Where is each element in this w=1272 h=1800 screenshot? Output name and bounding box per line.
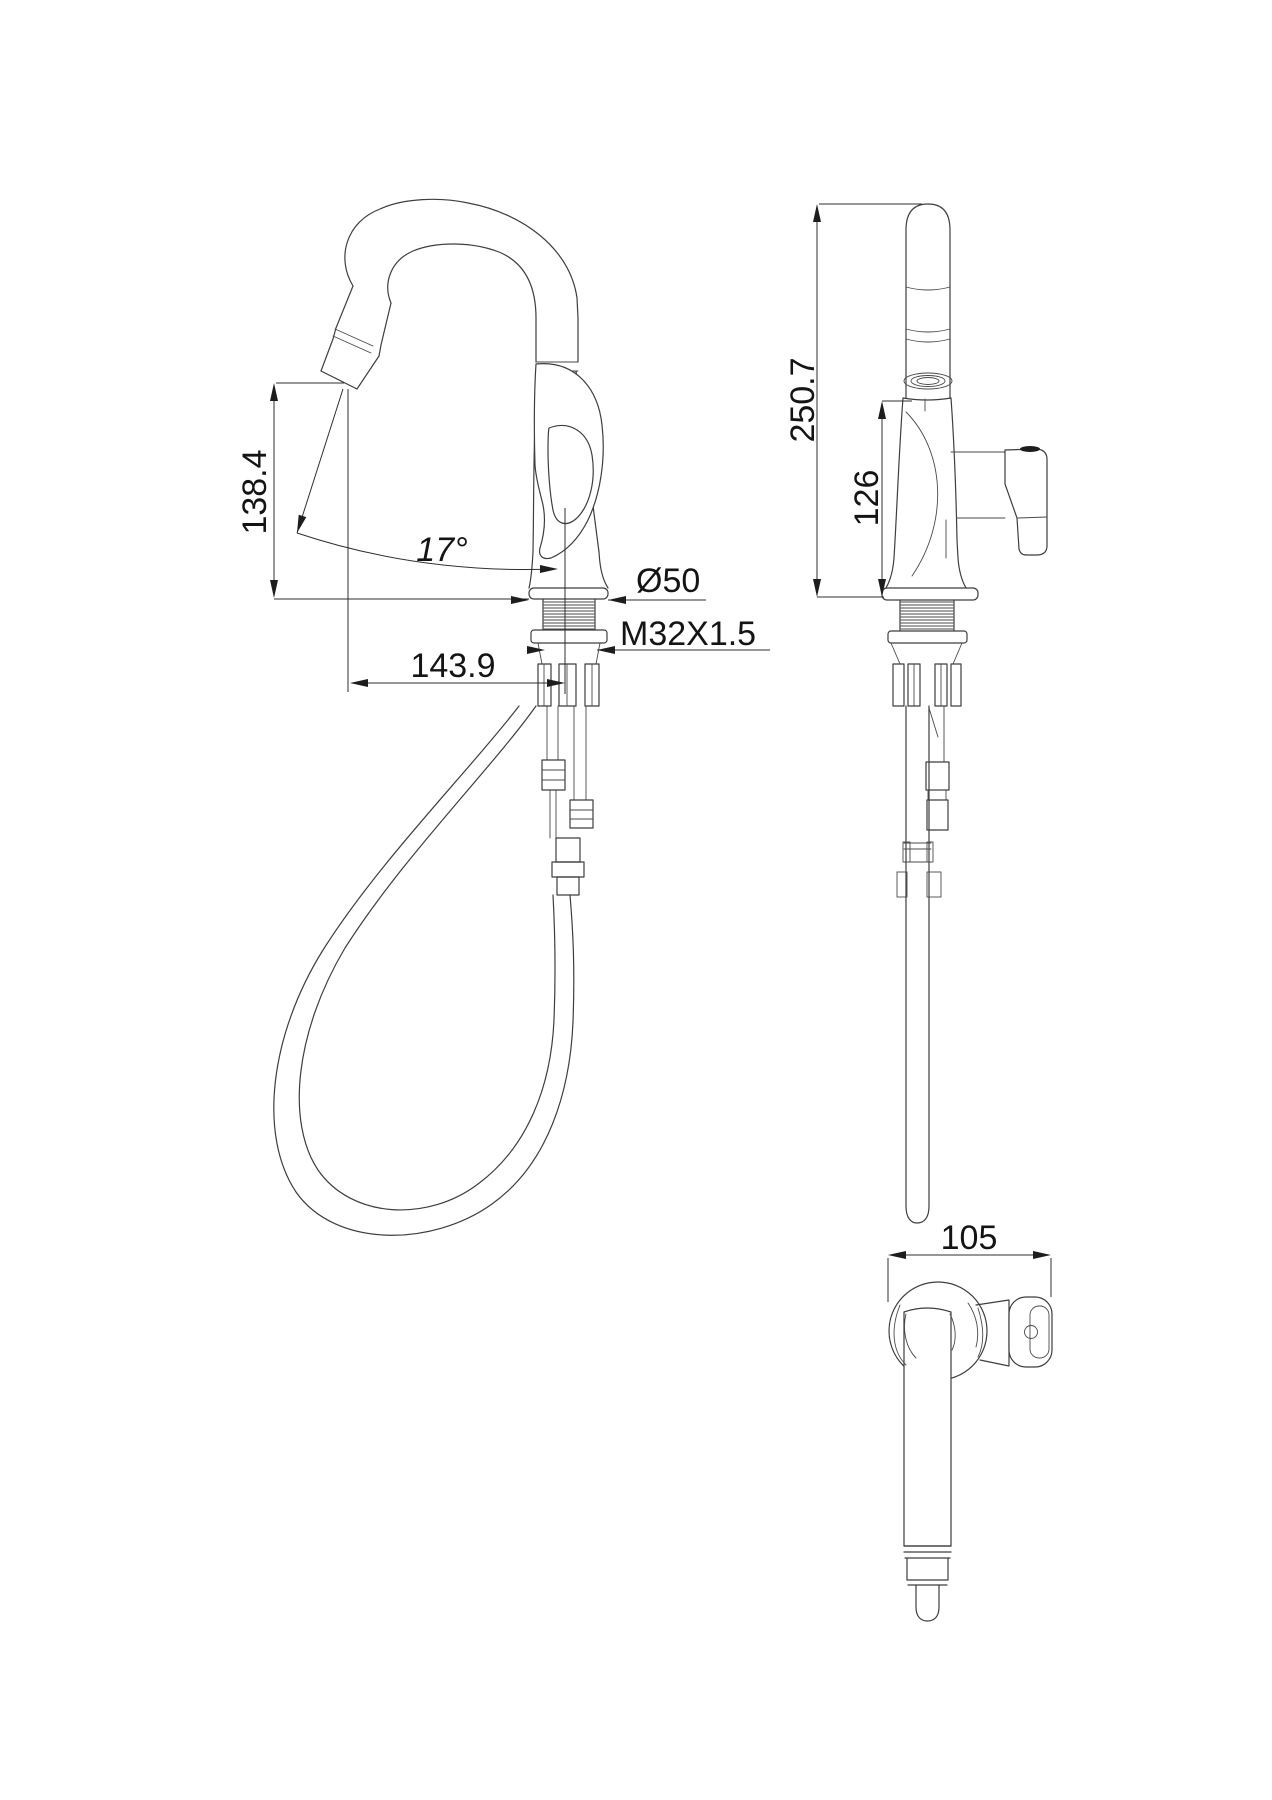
side-view [274, 199, 608, 1235]
supply-tubes [542, 706, 593, 838]
front-thread [900, 600, 954, 631]
hose-loop [274, 706, 574, 1235]
base-plate [529, 588, 608, 599]
front-lock-nut [888, 631, 967, 643]
dim-label-spray-angle: 17° [416, 531, 467, 569]
dim-label-overall-height: 250.7 [784, 357, 822, 442]
top-view [889, 1282, 1052, 1621]
hose-connector [552, 838, 584, 895]
dim-spout-tip-height: 138.4 [236, 383, 529, 599]
dim-mounting-thread: M32X1.5 [527, 615, 770, 654]
dim-label-mounting-thread: M32X1.5 [620, 615, 756, 653]
dim-label-escutcheon-diameter: Ø50 [636, 562, 700, 600]
front-shank-taper [891, 643, 962, 664]
handle-side [534, 364, 603, 559]
front-base-plate [882, 588, 978, 600]
technical-drawing-page: 138.4 17° Ø50 M32X1.5 [0, 0, 1272, 1800]
front-hose [897, 706, 941, 1223]
dim-label-spout-reach: 143.9 [410, 647, 495, 685]
spray-head [321, 286, 391, 389]
front-view [882, 204, 1047, 1223]
spout-inner-arc [388, 244, 536, 362]
dim-spray-angle: 17° [297, 389, 558, 573]
dim-label-body-height: 126 [848, 470, 886, 527]
front-body [886, 398, 966, 588]
dim-label-spout-tip-height: 138.4 [236, 449, 274, 534]
faucet-drawing-canvas: 138.4 17° Ø50 M32X1.5 [0, 0, 1272, 1800]
lock-nut [531, 630, 607, 643]
shank-taper [538, 643, 600, 664]
top-spout [894, 1303, 978, 1621]
lever-tip [1020, 446, 1040, 452]
spout-outer-arc [345, 199, 578, 362]
front-mounting-tabs [893, 664, 961, 706]
front-spout-tube [904, 204, 952, 398]
dim-label-handle-depth: 105 [941, 1219, 998, 1257]
mounting-thread [543, 599, 595, 630]
dim-body-height: 126 [848, 401, 912, 597]
front-handle [951, 446, 1047, 555]
